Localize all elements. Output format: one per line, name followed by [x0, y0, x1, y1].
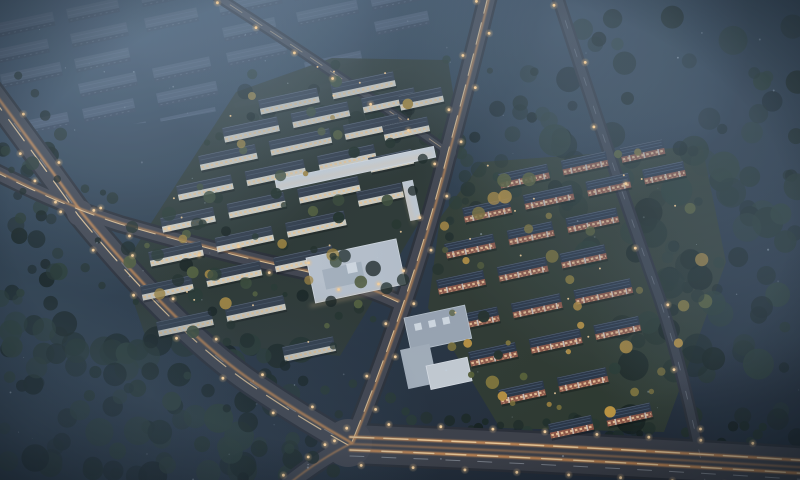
rendered-scene-canvas: [0, 0, 800, 480]
vignette: [0, 0, 800, 480]
aerial-night-render: [0, 0, 800, 480]
atmosphere-effects: [0, 0, 800, 480]
